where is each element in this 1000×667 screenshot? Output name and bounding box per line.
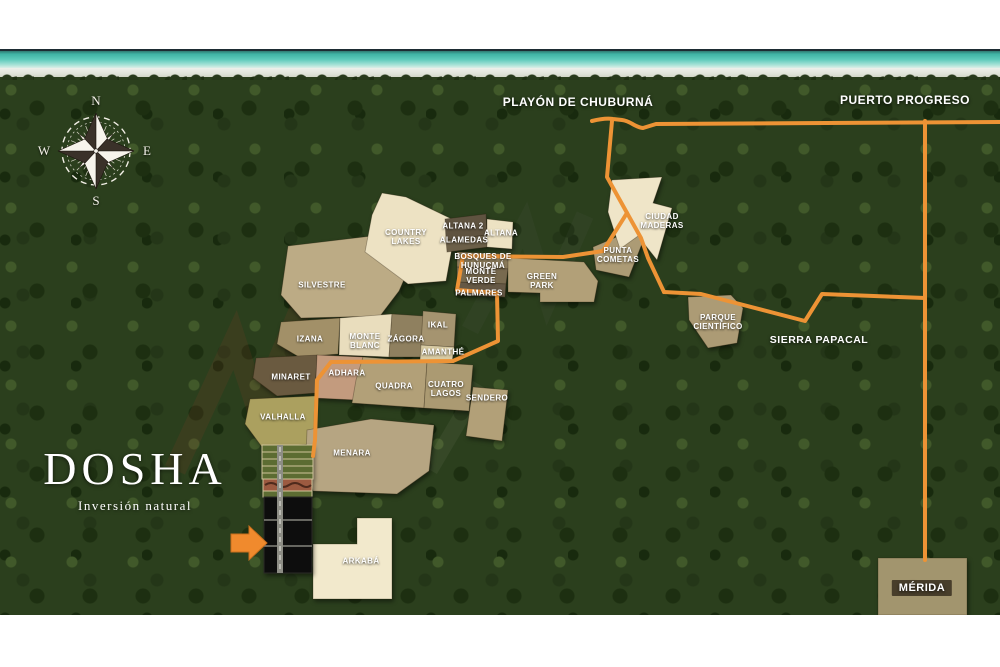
parcel-label-silvestre: SILVESTRE bbox=[298, 280, 345, 289]
location-arrow-icon bbox=[231, 526, 267, 560]
parcel-label-green-park: GREENPARK bbox=[527, 272, 557, 290]
parcel-label-line: CUATRO bbox=[428, 380, 464, 389]
parcel-label-sendero: SENDERO bbox=[466, 393, 508, 402]
parcel-label-line: ALAMEDAS bbox=[440, 235, 489, 244]
parcel-label-zagora: ZÁGORA bbox=[387, 334, 424, 343]
place-sierra-papacal: SIERRA PAPACAL bbox=[770, 334, 868, 346]
dosha-logo: DOSHA Inversión natural bbox=[30, 446, 240, 514]
parcel-label-line: MONTE bbox=[350, 332, 381, 341]
parcel-label-monte-verde: MONTEVERDE bbox=[466, 267, 497, 285]
parcel-label-line: LAGOS bbox=[428, 389, 464, 398]
place-puerto-progreso: PUERTO PROGRESO bbox=[840, 93, 970, 107]
parcel-label-line: VALHALLA bbox=[260, 412, 306, 421]
parcel-label-line: IZANA bbox=[297, 334, 323, 343]
parcel-label-line: ALTANA 2 bbox=[442, 221, 483, 230]
dosha-green-lots bbox=[262, 445, 313, 479]
parcel-label-line: PARQUE bbox=[693, 313, 742, 322]
parcel-label-minaret: MINARET bbox=[271, 372, 310, 381]
parcel-label-quadra: QUADRA bbox=[375, 381, 413, 390]
dosha-black-lots bbox=[264, 497, 312, 573]
parcel-label-monte-blanc: MONTEBLANC bbox=[350, 332, 381, 350]
parcel-label-menara: MENARA bbox=[333, 448, 371, 457]
parcel-label-izana: IZANA bbox=[297, 334, 323, 343]
parcel-label-line: ZÁGORA bbox=[387, 334, 424, 343]
compass-south-label: S bbox=[92, 193, 99, 209]
parcel-label-line: BOSQUES DE bbox=[454, 252, 511, 261]
parcel-label-valhalla: VALHALLA bbox=[260, 412, 306, 421]
parcel-label-line: COUNTRY bbox=[385, 228, 427, 237]
brand-tagline: Inversión natural bbox=[30, 498, 240, 514]
merida-label: MÉRIDA bbox=[892, 580, 952, 596]
parcel-label-punta-cometas: PUNTACOMETAS bbox=[597, 246, 639, 264]
parcel-label-arkaba: ARKABÁ bbox=[342, 556, 379, 565]
parcel-label-palmares: PALMARES bbox=[455, 288, 503, 297]
parcel-label-line: ARKABÁ bbox=[342, 556, 379, 565]
parcel-label-line: CIENTÍFICO bbox=[693, 322, 742, 331]
compass-rose bbox=[58, 113, 134, 189]
parcel-label-line: ALTANA bbox=[484, 228, 518, 237]
parcel-label-cuatro-lagos: CUATROLAGOS bbox=[428, 380, 464, 398]
parcel-label-line: QUADRA bbox=[375, 381, 413, 390]
compass-east-label: E bbox=[143, 143, 151, 159]
parcel-label-line: GREEN bbox=[527, 272, 557, 281]
parcel-label-alamedas: ALAMEDAS bbox=[440, 235, 489, 244]
parcel-label-line: PARK bbox=[527, 281, 557, 290]
parcel-label-line: AMANTHÉ bbox=[422, 347, 465, 356]
road-coastal bbox=[592, 119, 1000, 128]
parcel-label-adhara: ADHARA bbox=[328, 368, 365, 377]
parcel-label-line: MADERAS bbox=[640, 221, 683, 230]
parcel-label-line: PUNTA bbox=[597, 246, 639, 255]
parcel-label-parque-cientifico: PARQUECIENTÍFICO bbox=[693, 313, 742, 331]
parcel-label-line: BLANC bbox=[350, 341, 381, 350]
parcel-label-ikal: IKAL bbox=[428, 320, 448, 329]
dosha-masterplan-map: N E S W PLAYÓN DE CHUBURNÁ PUERTO PROGRE… bbox=[0, 0, 1000, 667]
parcel-label-line: CIUDAD bbox=[640, 212, 683, 221]
bottom-white-band bbox=[0, 615, 1000, 667]
parcel-label-country-lakes: COUNTRYLAKES bbox=[385, 228, 427, 246]
dosha-green-lot-2 bbox=[263, 491, 312, 497]
dosha-internal-road bbox=[277, 445, 283, 573]
parcel-label-line: VERDE bbox=[466, 276, 497, 285]
parcel-label-line: SILVESTRE bbox=[298, 280, 345, 289]
parcel-label-altana-2: ALTANA 2 bbox=[442, 221, 483, 230]
parcel-label-line: LAKES bbox=[385, 237, 427, 246]
parcel-label-altana: ALTANA bbox=[484, 228, 518, 237]
parcel-label-line: ADHARA bbox=[328, 368, 365, 377]
place-playon-de-chuburna: PLAYÓN DE CHUBURNÁ bbox=[503, 95, 654, 109]
parcel-label-line: IKAL bbox=[428, 320, 448, 329]
parcel-label-line: MENARA bbox=[333, 448, 371, 457]
parcel-label-line: MINARET bbox=[271, 372, 310, 381]
brand-name: DOSHA bbox=[30, 446, 240, 492]
parcel-label-line: SENDERO bbox=[466, 393, 508, 402]
place-merida: MÉRIDA bbox=[892, 580, 952, 594]
parcel-label-line: COMETAS bbox=[597, 255, 639, 264]
parcel-label-line: MONTE bbox=[466, 267, 497, 276]
parcel-label-ciudad-maderas: CIUDADMADERAS bbox=[640, 212, 683, 230]
compass-north-label: N bbox=[91, 93, 100, 109]
parcel-label-line: PALMARES bbox=[455, 288, 503, 297]
parcel-label-amanthe: AMANTHÉ bbox=[422, 347, 465, 356]
compass-west-label: W bbox=[38, 143, 50, 159]
